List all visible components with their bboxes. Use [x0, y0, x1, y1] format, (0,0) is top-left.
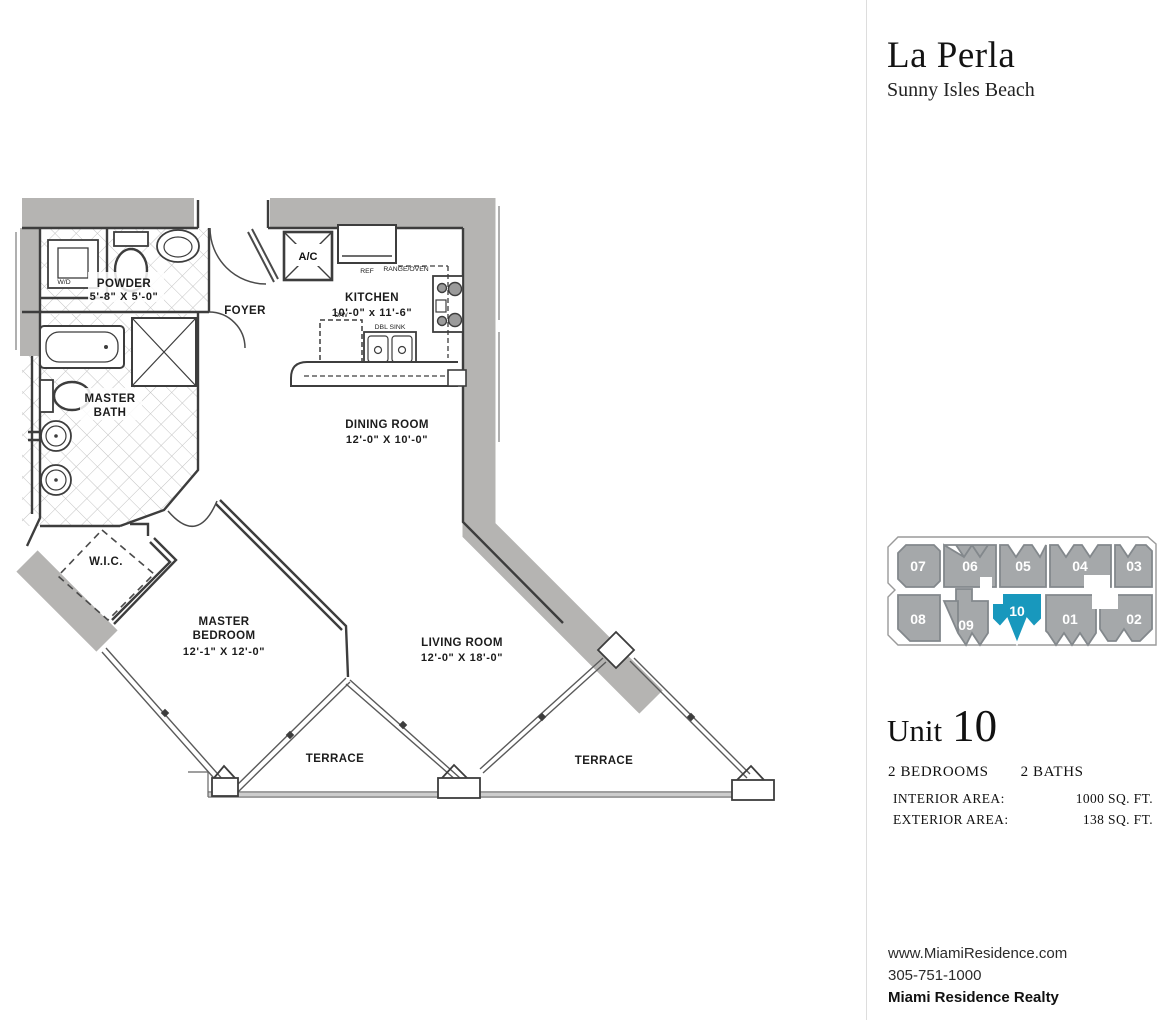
bedroom-dim: 12'-1" X 12'-0" — [183, 646, 265, 658]
refrigerator — [338, 225, 396, 263]
keyplan-label-10: 10 — [1009, 603, 1025, 619]
bed-bath-line: 2 BEDROOMS 2 BATHS — [888, 764, 1084, 781]
window-mullions — [161, 709, 695, 739]
baths-text: 2 BATHS — [1021, 764, 1084, 781]
ac-label: A/C — [299, 251, 318, 263]
bedroom-label-1: MASTER — [199, 616, 250, 628]
dishwasher — [320, 320, 362, 362]
kitchen-fixtures — [284, 225, 466, 386]
exterior-area-m2: 13 M² — [1153, 812, 1163, 828]
exterior-area-row: EXTERIOR AREA: 138 SQ. FT. 13 M² — [893, 809, 1163, 830]
area-table: INTERIOR AREA: 1000 SQ. FT. 93 M² EXTERI… — [893, 788, 1163, 830]
vertical-divider — [866, 0, 867, 1020]
ref-label: REF — [360, 268, 374, 275]
shower — [132, 318, 196, 386]
keyplan-label-04: 04 — [1072, 558, 1088, 574]
website-link[interactable]: www.MiamiResidence.com — [888, 943, 1067, 965]
unit-word: Unit — [887, 713, 942, 749]
keyplan-label-03: 03 — [1126, 558, 1142, 574]
building-location: Sunny Isles Beach — [887, 79, 1035, 102]
living-label: LIVING ROOM — [421, 637, 503, 649]
bedroom-label-2: BEDROOM — [193, 630, 256, 642]
unit-number: 10 — [952, 700, 997, 752]
keyplan-label-02: 02 — [1126, 611, 1142, 627]
master-bath-label-2: BATH — [94, 407, 127, 419]
exterior-area-label: EXTERIOR AREA: — [893, 812, 1045, 828]
interior-area-sqft: 1000 SQ. FT. — [1045, 791, 1153, 807]
company-name: Miami Residence Realty — [888, 987, 1067, 1009]
keyplan-label-05: 05 — [1015, 558, 1031, 574]
interior-area-label: INTERIOR AREA: — [893, 791, 1045, 807]
bedrooms-text: 2 BEDROOMS — [888, 764, 989, 781]
dbl-sink-label: DBL SINK — [375, 324, 406, 331]
keyplan-label-01: 01 — [1062, 611, 1078, 627]
interior-area-m2: 93 M² — [1153, 791, 1163, 807]
keyplan-label-08: 08 — [910, 611, 926, 627]
unit-heading: Unit 10 — [887, 700, 997, 752]
building-title: La Perla — [887, 34, 1015, 77]
foyer-label: FOYER — [224, 305, 266, 317]
powder-dim: 5'-8" X 5'-0" — [90, 291, 159, 303]
dining-label: DINING ROOM — [345, 419, 429, 431]
floorplan-brochure-page: { "header": { "title": "La Perla", "subt… — [0, 0, 1163, 1020]
contact-block: www.MiamiResidence.com 305-751-1000 Miam… — [888, 943, 1067, 1009]
dining-dim: 12'-0" X 10'-0" — [346, 434, 428, 446]
floorplan-drawing: POWDER 5'-8" X 5'-0" FOYER KITCHEN 10'-0… — [2, 180, 802, 830]
keyplan-label-06: 06 — [962, 558, 978, 574]
living-dim: 12'-0" X 18'-0" — [421, 652, 503, 664]
powder-label: POWDER — [97, 278, 151, 290]
range-oven-label: RANGE/OVEN — [383, 266, 428, 273]
keyplan-label-07: 07 — [910, 558, 926, 574]
bathtub — [40, 326, 124, 368]
powder-sink — [157, 230, 199, 262]
kitchen-label: KITCHEN — [345, 292, 399, 304]
terrace-left-label: TERRACE — [306, 753, 364, 765]
double-sink — [364, 332, 416, 366]
dw-label: D/W — [334, 312, 348, 319]
terrace-right-label: TERRACE — [575, 755, 633, 767]
keyplan-label-09: 09 — [958, 617, 974, 633]
master-bath-label-1: MASTER — [85, 393, 136, 405]
phone-number: 305-751-1000 — [888, 965, 1067, 987]
interior-area-row: INTERIOR AREA: 1000 SQ. FT. 93 M² — [893, 788, 1163, 809]
wic-label: W.I.C. — [89, 556, 123, 568]
wd-label: W/D — [57, 279, 70, 286]
building-keyplan: 07 06 05 04 03 08 09 10 01 02 — [884, 531, 1162, 655]
exterior-area-sqft: 138 SQ. FT. — [1045, 812, 1153, 828]
